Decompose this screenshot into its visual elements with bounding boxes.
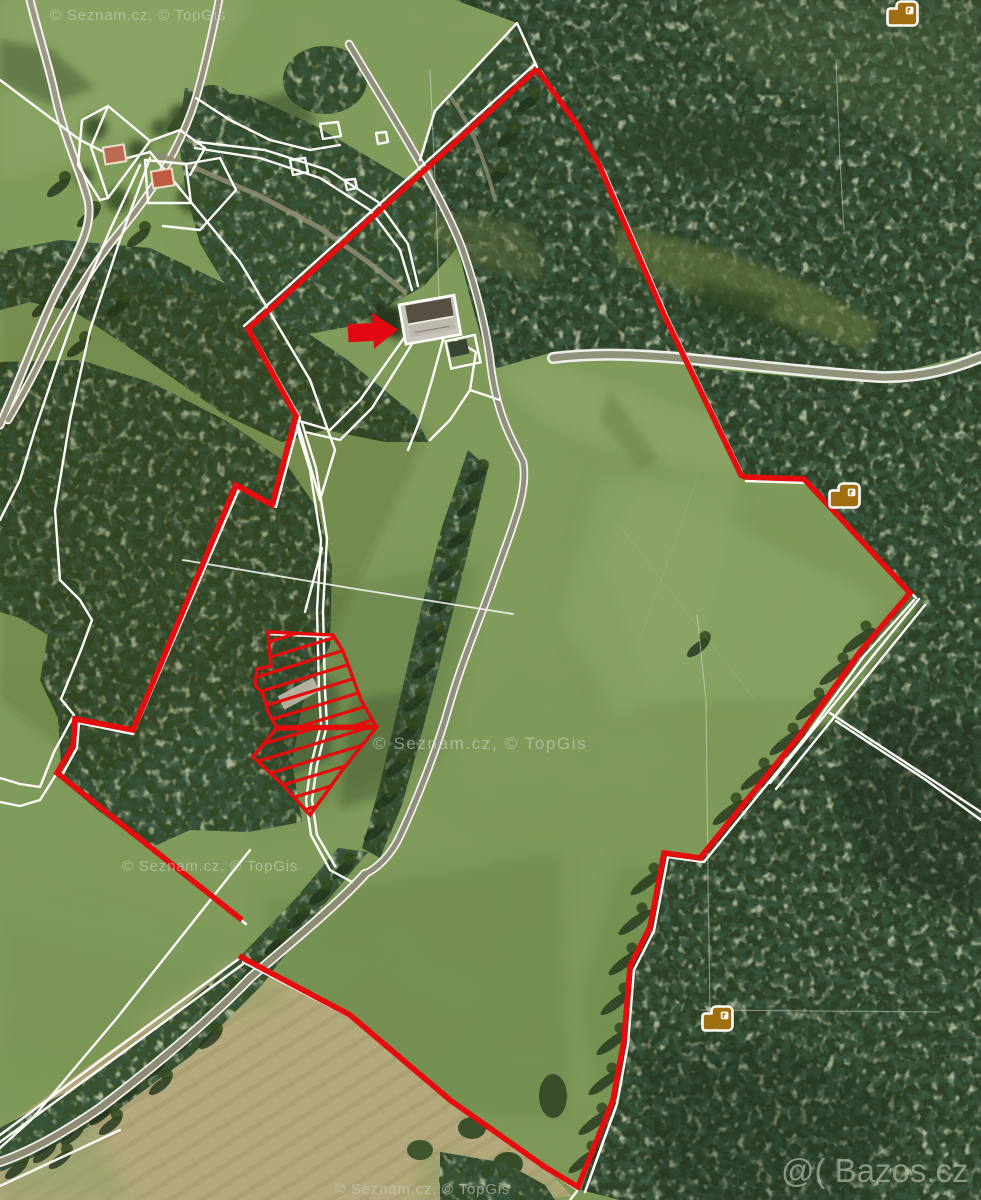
svg-text:© Seznam.cz, © TopGis: © Seznam.cz, © TopGis: [373, 734, 587, 753]
svg-text:@( Bazos.cz: @( Bazos.cz: [781, 1152, 969, 1189]
svg-text:© Seznam.cz, © TopGis: © Seznam.cz, © TopGis: [122, 858, 298, 875]
svg-text:© Seznam.cz, © TopGis: © Seznam.cz, © TopGis: [50, 7, 226, 24]
svg-text:© Seznam.cz, © TopGis: © Seznam.cz, © TopGis: [334, 1181, 510, 1198]
